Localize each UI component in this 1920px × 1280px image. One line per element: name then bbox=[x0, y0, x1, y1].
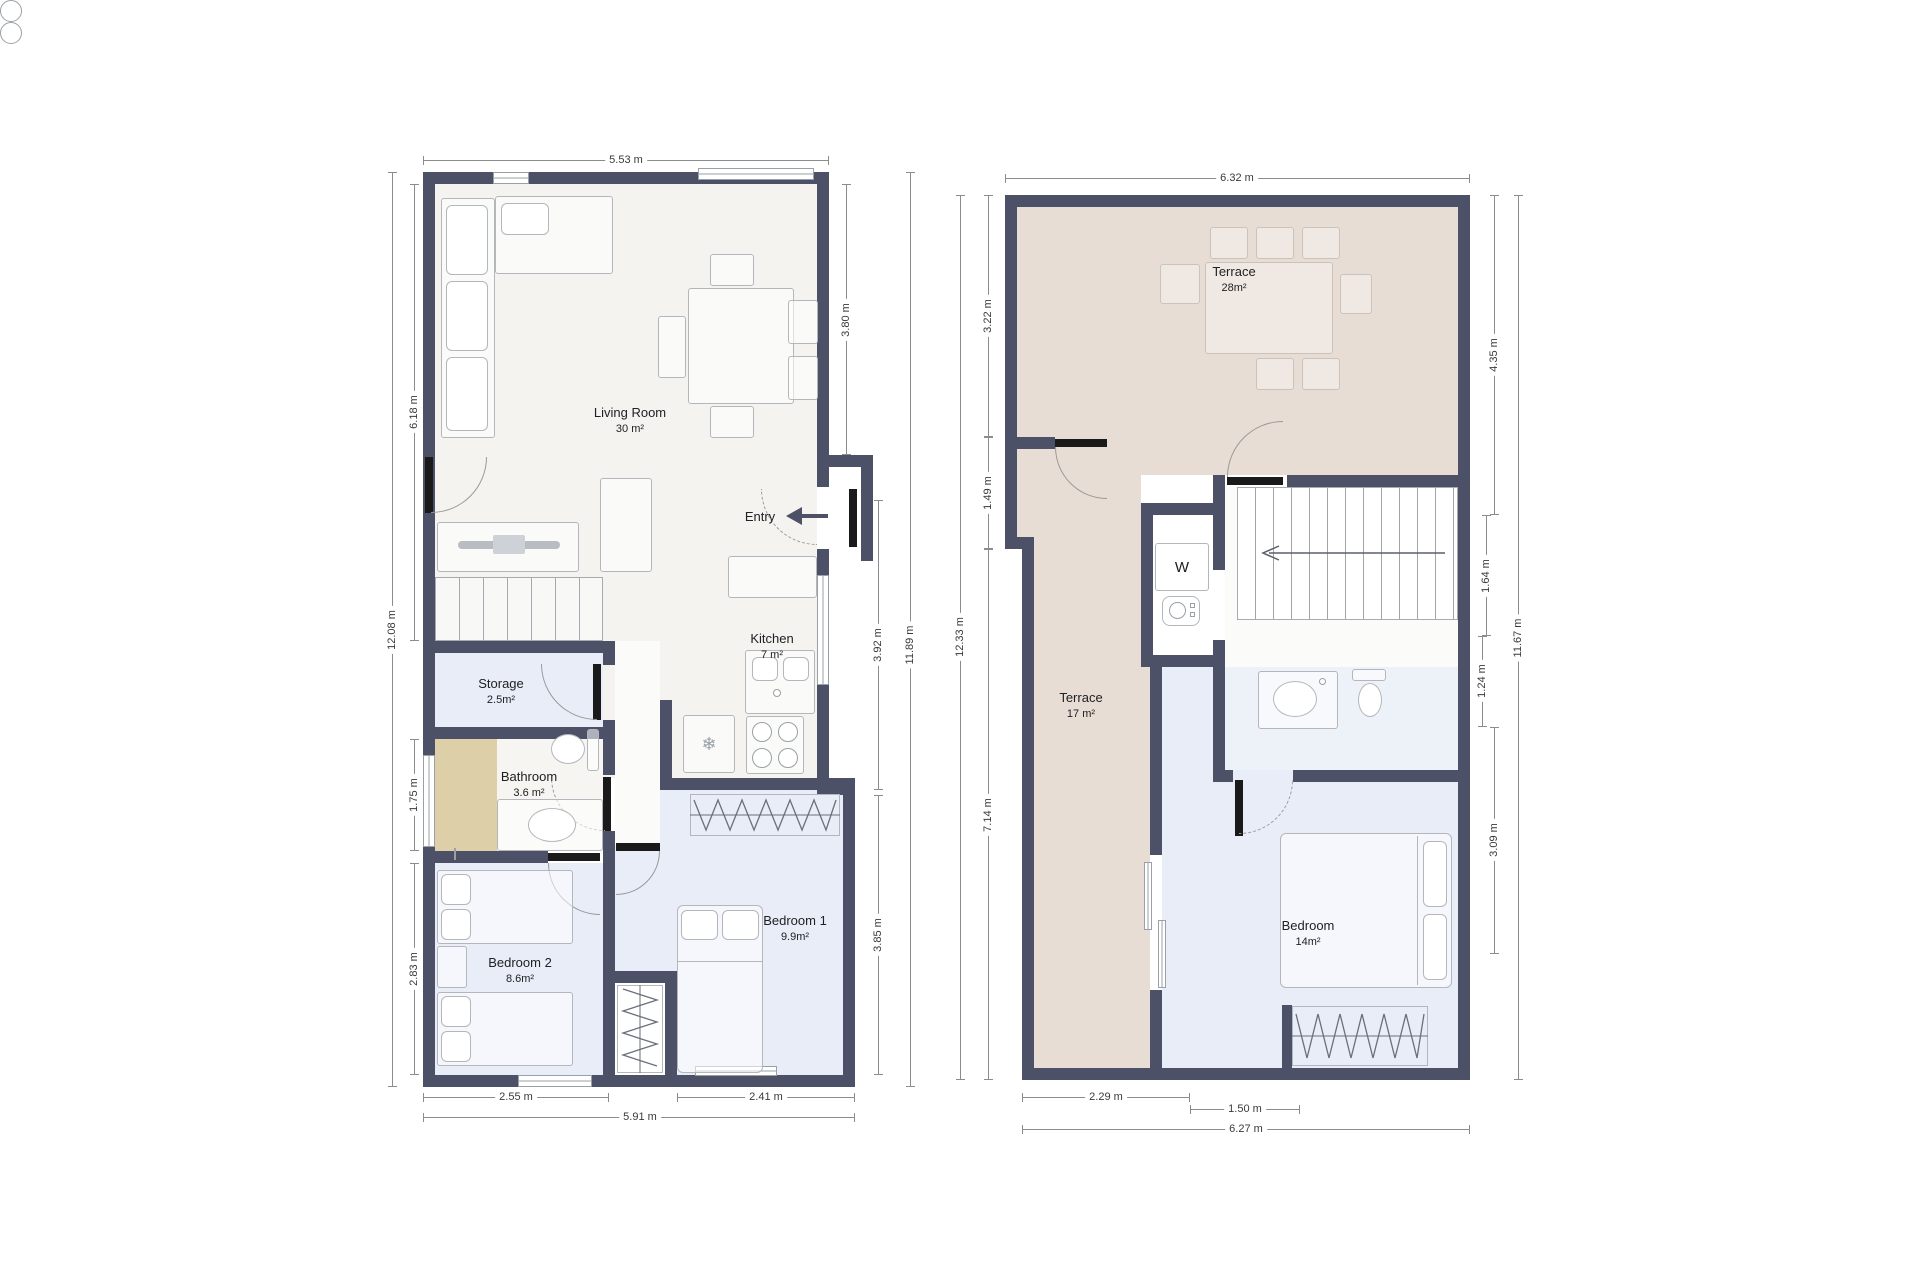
bed bbox=[437, 992, 573, 1066]
sofa bbox=[441, 198, 495, 438]
dim-label: 12.33 m bbox=[953, 613, 967, 661]
wall bbox=[1141, 503, 1153, 667]
window bbox=[518, 1075, 592, 1087]
dim-label: 5.91 m bbox=[619, 1110, 661, 1124]
shower-head-icon bbox=[0, 22, 22, 44]
fridge-icon: ❄ bbox=[683, 715, 735, 773]
door bbox=[616, 843, 660, 851]
shower-stem bbox=[454, 848, 456, 860]
nightstand bbox=[437, 946, 467, 988]
outdoor-chair bbox=[1302, 227, 1340, 259]
stairs-direction-arrow-icon bbox=[1255, 543, 1447, 563]
wall bbox=[843, 783, 855, 1087]
staircase bbox=[435, 577, 603, 641]
wall bbox=[423, 172, 435, 1087]
dim-label: 4.35 m bbox=[1487, 334, 1501, 376]
room-label-living-room: Living Room 30 m² bbox=[594, 405, 666, 437]
outdoor-chair bbox=[1340, 274, 1372, 314]
dim-label: 1.75 m bbox=[407, 774, 421, 816]
outdoor-side-table bbox=[1160, 264, 1200, 304]
dim-label: 3.85 m bbox=[871, 914, 885, 956]
wall bbox=[861, 455, 873, 561]
terrace-lower-floor bbox=[1034, 549, 1150, 1068]
wall bbox=[603, 851, 615, 1087]
wall bbox=[1022, 1068, 1470, 1080]
wardrobe-icon bbox=[690, 794, 840, 836]
water-heater-icon bbox=[1162, 596, 1200, 626]
room-label-bathroom: Bathroom 3.6 m² bbox=[501, 769, 557, 801]
dining-bench bbox=[658, 316, 686, 378]
hallway-floor bbox=[615, 641, 660, 845]
dim-label: 1.50 m bbox=[1224, 1102, 1266, 1116]
washer-icon: W bbox=[1155, 543, 1209, 591]
bed bbox=[437, 870, 573, 944]
dim-label: 11.89 m bbox=[903, 622, 917, 669]
toilet-icon bbox=[1352, 669, 1386, 681]
dim-label: 2.55 m bbox=[495, 1090, 537, 1104]
entry-door bbox=[849, 489, 857, 547]
washer-label: W bbox=[1175, 559, 1189, 576]
wall bbox=[603, 641, 615, 665]
wall bbox=[423, 1075, 855, 1087]
wall bbox=[1141, 655, 1225, 667]
floor-plan-upper: W bbox=[0, 22, 1920, 44]
wall bbox=[1458, 195, 1470, 1080]
dim-label: 6.18 m bbox=[407, 391, 421, 433]
wall bbox=[1293, 770, 1470, 782]
sliding-door-panel bbox=[1158, 920, 1166, 988]
wall bbox=[1005, 195, 1470, 207]
outdoor-chair bbox=[1302, 358, 1340, 390]
dining-chair bbox=[788, 356, 818, 400]
dim-label: 2.41 m bbox=[745, 1090, 787, 1104]
outdoor-chair bbox=[1256, 358, 1294, 390]
dim-label: 5.53 m bbox=[605, 153, 647, 167]
dim-label: 1.24 m bbox=[1475, 660, 1489, 702]
wall bbox=[1022, 537, 1034, 1080]
dim-label: 3.09 m bbox=[1487, 819, 1501, 861]
wall bbox=[603, 739, 615, 775]
shower-area bbox=[435, 739, 497, 851]
wall bbox=[603, 720, 615, 739]
wall bbox=[1213, 667, 1225, 782]
dim-label: 1.64 m bbox=[1479, 555, 1493, 597]
door bbox=[1055, 439, 1107, 447]
bathroom-vanity bbox=[497, 799, 603, 851]
wall bbox=[423, 641, 615, 653]
dining-chair bbox=[710, 254, 754, 286]
bed bbox=[1280, 833, 1452, 988]
window bbox=[423, 755, 435, 847]
wall bbox=[660, 700, 672, 790]
wall bbox=[423, 851, 548, 863]
room-label-bedroom: Bedroom 14m² bbox=[1282, 918, 1335, 950]
wall bbox=[817, 172, 829, 487]
dim-label: 3.22 m bbox=[981, 295, 995, 337]
toilet-icon bbox=[587, 729, 599, 771]
stove-icon bbox=[746, 716, 804, 774]
coffee-table bbox=[600, 478, 652, 572]
dim-label: 11.67 m bbox=[1511, 615, 1525, 662]
wall bbox=[603, 831, 615, 851]
bathroom-vanity bbox=[1258, 671, 1338, 729]
dim-label: 3.92 m bbox=[871, 624, 885, 666]
window bbox=[493, 172, 529, 184]
wall bbox=[660, 778, 855, 790]
dim-label: 2.83 m bbox=[407, 948, 421, 990]
dim-label: 6.27 m bbox=[1225, 1122, 1267, 1136]
floor-plan-ground: ❄ bbox=[0, 0, 1920, 22]
shower-head-icon bbox=[0, 0, 22, 22]
kitchen-counter bbox=[728, 556, 817, 598]
sliding-door-panel bbox=[1144, 862, 1152, 930]
closet-opening bbox=[1213, 570, 1225, 640]
dining-table bbox=[688, 288, 794, 404]
entry-arrow-icon bbox=[783, 505, 829, 527]
wall bbox=[1005, 437, 1055, 449]
window bbox=[698, 168, 814, 180]
room-label-kitchen: Kitchen 7 m² bbox=[750, 631, 793, 663]
wall bbox=[1005, 195, 1017, 549]
room-label-bedroom1: Bedroom 1 9.9m² bbox=[763, 913, 827, 945]
door bbox=[1227, 477, 1283, 485]
wall bbox=[1225, 770, 1233, 782]
wall bbox=[1282, 1005, 1292, 1068]
room-label-terrace-lower: Terrace 17 m² bbox=[1059, 690, 1102, 722]
toilet-bowl bbox=[551, 734, 585, 764]
room-label-storage: Storage 2.5m² bbox=[478, 676, 524, 708]
wall bbox=[1150, 990, 1162, 1080]
outdoor-chair bbox=[1256, 227, 1294, 259]
closet-icon bbox=[617, 985, 663, 1073]
outdoor-chair bbox=[1210, 227, 1248, 259]
wardrobe-icon bbox=[1292, 1006, 1428, 1066]
tv-console bbox=[437, 522, 579, 572]
dim-label: 7.14 m bbox=[981, 794, 995, 836]
wall bbox=[665, 971, 677, 1087]
entry-label: Entry bbox=[745, 509, 775, 525]
dim-label: 6.32 m bbox=[1216, 171, 1258, 185]
room-label-terrace-upper: Terrace 28m² bbox=[1212, 264, 1255, 296]
door bbox=[548, 853, 600, 861]
sofa-chaise bbox=[495, 196, 613, 274]
dim-label: 1.49 m bbox=[981, 472, 995, 514]
wall bbox=[1141, 503, 1225, 515]
room-label-bedroom2: Bedroom 2 8.6m² bbox=[488, 955, 552, 987]
bed bbox=[677, 905, 763, 1073]
dim-label: 2.29 m bbox=[1085, 1090, 1127, 1104]
wall bbox=[1213, 475, 1225, 570]
floor-plan-canvas: ❄ bbox=[0, 0, 1920, 1280]
dining-chair bbox=[710, 406, 754, 438]
dim-label: 3.80 m bbox=[839, 299, 853, 341]
wall bbox=[1150, 667, 1162, 855]
window bbox=[817, 575, 829, 685]
dim-label: 12.08 m bbox=[385, 606, 399, 654]
wall bbox=[1287, 475, 1470, 487]
toilet-bowl bbox=[1358, 683, 1382, 717]
dining-chair bbox=[788, 300, 818, 344]
